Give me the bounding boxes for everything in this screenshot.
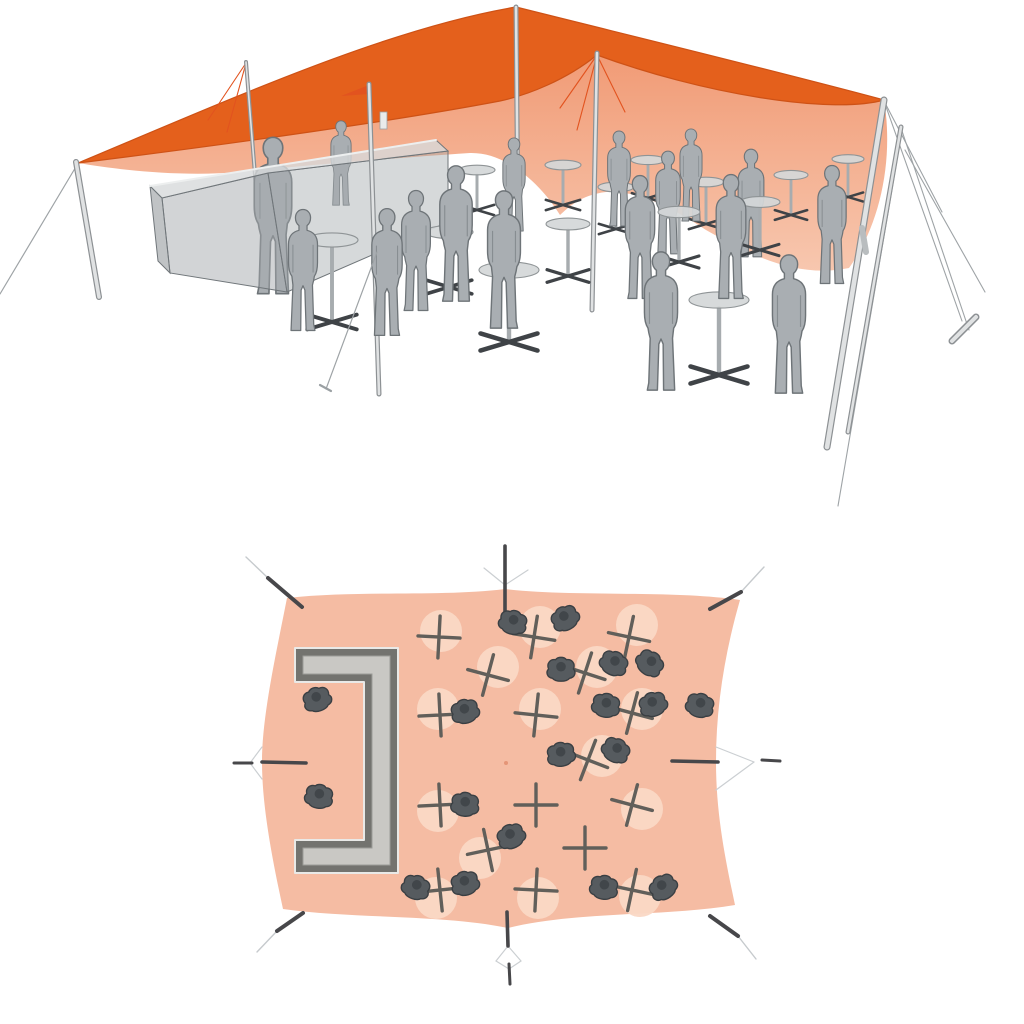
corner-pole bbox=[76, 162, 99, 297]
plan-view bbox=[0, 512, 1024, 1024]
perspective-view bbox=[0, 0, 1024, 512]
bottle-on-bar bbox=[380, 112, 387, 129]
person-figure-plan bbox=[547, 657, 575, 681]
corner-anchor bbox=[257, 931, 277, 952]
bistro-table bbox=[689, 292, 749, 384]
corner-stake bbox=[710, 916, 738, 936]
corner-anchor bbox=[738, 936, 756, 959]
center-pole-mark bbox=[504, 761, 508, 765]
render-canvas bbox=[0, 0, 1024, 1024]
corner-stake bbox=[277, 913, 303, 931]
person-figure bbox=[772, 255, 805, 393]
corner-anchor bbox=[741, 567, 764, 592]
bistro-table bbox=[546, 218, 590, 282]
left-corner-rigging bbox=[0, 162, 99, 297]
corner-anchor bbox=[246, 557, 268, 578]
corner-stake bbox=[268, 578, 302, 607]
